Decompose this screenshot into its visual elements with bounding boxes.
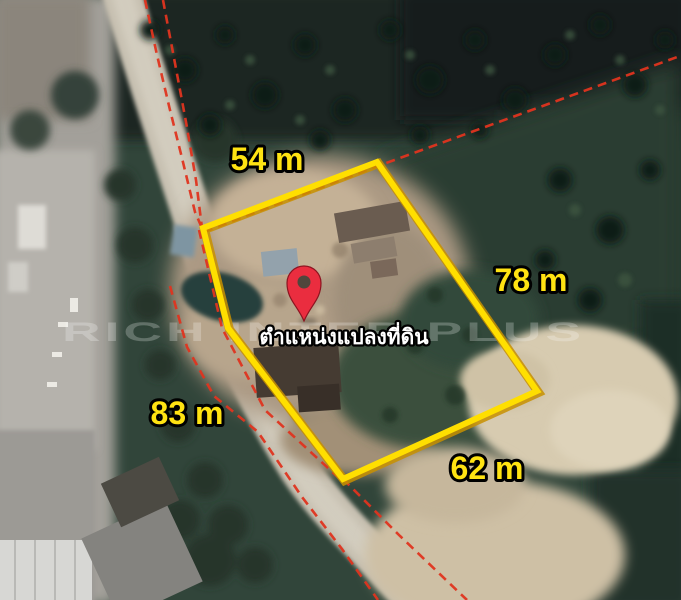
measurement-label-top: 54 m [231,141,304,177]
measurement-label-bottom: 62 m [451,450,524,486]
satellite-imagery [0,0,681,600]
satellite-map: RICH INTER PLUS 54 m 78 m 83 m 62 m ตำแห… [0,0,681,600]
measurement-label-left: 83 m [151,395,224,431]
pin-hole [298,276,311,289]
measurement-label-right: 78 m [495,262,568,298]
pin-caption: ตำแหน่งแปลงที่ดิน [259,321,429,349]
map-canvas: RICH INTER PLUS 54 m 78 m 83 m 62 m ตำแห… [0,0,681,600]
